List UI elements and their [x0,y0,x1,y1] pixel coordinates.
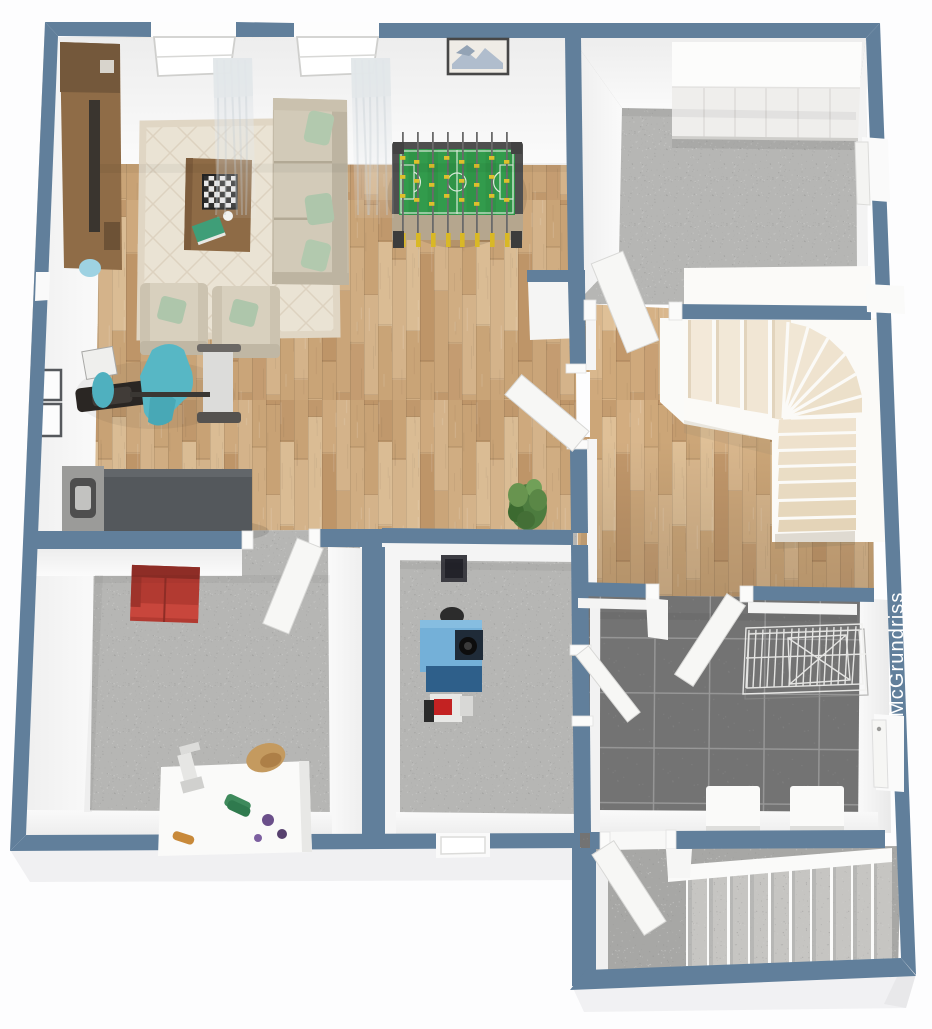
svg-text:McGrundriss: McGrundriss [886,592,908,717]
